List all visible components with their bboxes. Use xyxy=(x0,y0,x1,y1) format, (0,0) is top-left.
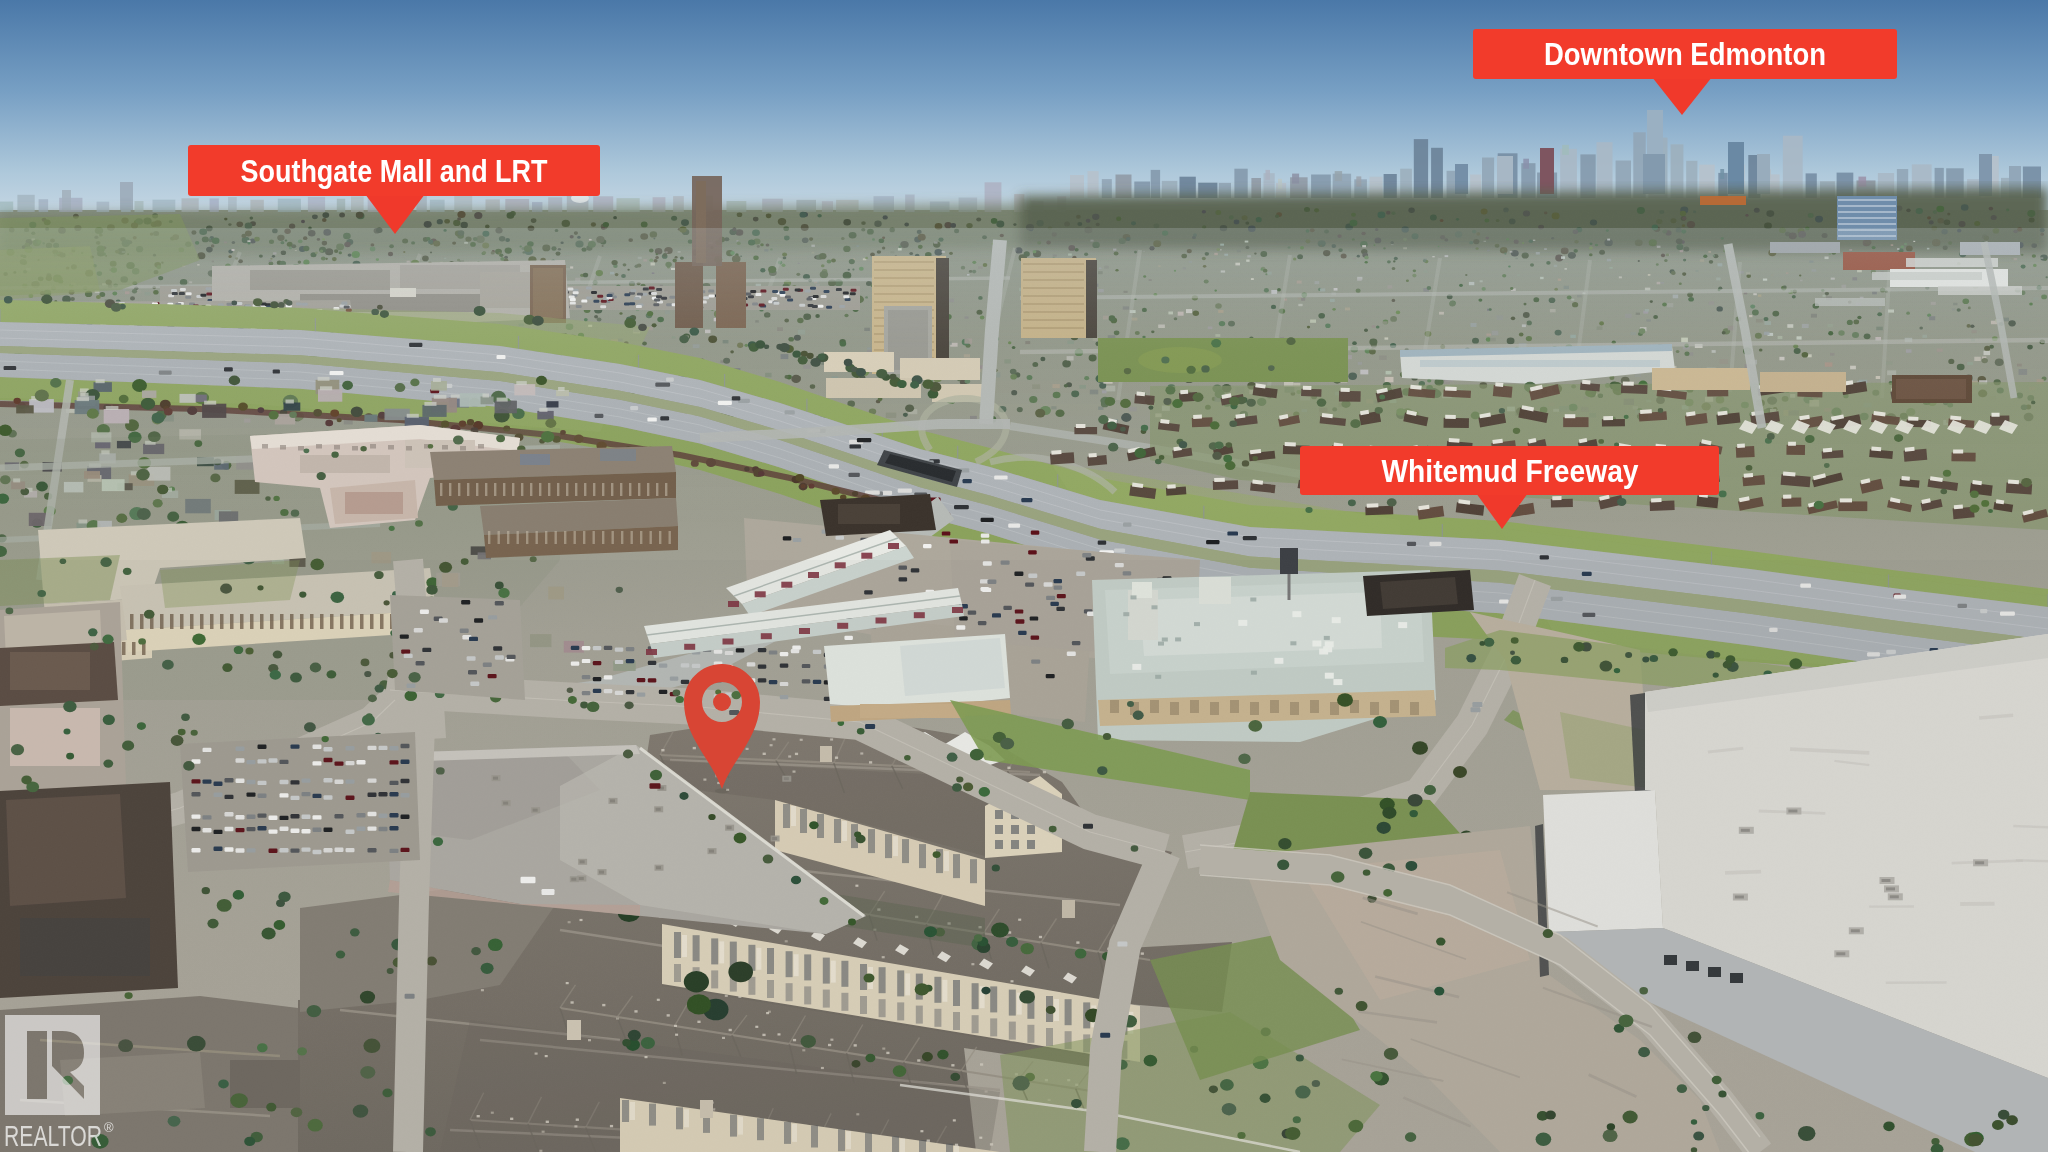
svg-text:Downtown Edmonton: Downtown Edmonton xyxy=(1544,37,1826,72)
svg-text:Whitemud Freeway: Whitemud Freeway xyxy=(1382,454,1640,489)
svg-text:REALTOR: REALTOR xyxy=(4,1119,102,1152)
svg-text:Southgate Mall and LRT: Southgate Mall and LRT xyxy=(241,154,548,189)
svg-text:®: ® xyxy=(104,1120,114,1135)
